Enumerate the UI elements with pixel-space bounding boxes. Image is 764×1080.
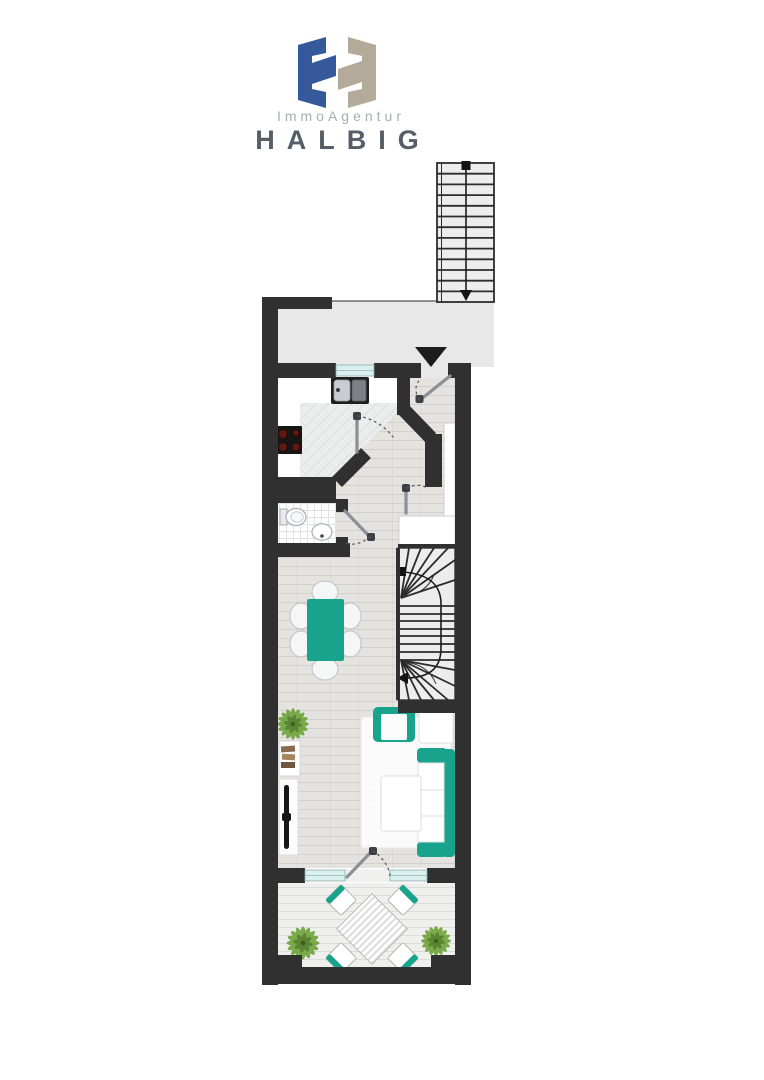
sofa [417, 748, 455, 857]
logo-mark-left-crossbar [312, 55, 336, 84]
closet-under-stair [399, 516, 455, 546]
books [281, 746, 295, 753]
sofa-cushions [418, 763, 444, 842]
wall-living-bottom-right [427, 868, 471, 883]
dining-table [307, 599, 344, 661]
washbasin-drain [320, 534, 324, 538]
books [281, 762, 295, 768]
logo-agency-line: ImmoAgentur [277, 108, 405, 124]
wall-stair-bottom [398, 700, 471, 713]
sink-faucet-icon [336, 388, 340, 392]
agency-logo: ImmoAgentur HALBIG [255, 37, 431, 155]
hall-niche [444, 423, 455, 521]
landing-floor [264, 301, 494, 367]
wall-top-a [262, 363, 336, 378]
stair-start-marker [462, 161, 471, 170]
sofa-back [443, 749, 455, 857]
wall-hall-stub [425, 434, 442, 487]
logo-mark-right-crossbar [338, 61, 362, 90]
internal-staircase [397, 548, 455, 700]
tv-unit [279, 779, 298, 855]
wall-stair-left [396, 548, 400, 700]
logo-agency-name: HALBIG [255, 125, 431, 155]
floorplan-page: ImmoAgentur HALBIG [0, 0, 764, 1080]
sofa-armrest-top [417, 748, 447, 763]
terrace-corner-left [262, 955, 302, 984]
coffee-table [381, 776, 421, 831]
armchair-seat [381, 714, 407, 740]
wall-living-bottom-left [262, 868, 305, 883]
sink-basin-right [352, 380, 366, 401]
wall-stair-top [398, 544, 455, 548]
terrace-corner-right [431, 955, 471, 984]
books [282, 754, 295, 761]
exterior-staircase [437, 161, 494, 302]
sofa-armrest-bottom [417, 842, 447, 857]
wall-kitchen-bath [262, 477, 336, 503]
wall-exterior-right [455, 363, 471, 985]
wall-bath-bottom [262, 543, 350, 557]
toilet-bowl-inner [291, 512, 303, 522]
wall-top-stub [262, 297, 332, 309]
sideboard [279, 741, 300, 776]
floor-plan-canvas: ImmoAgentur HALBIG [0, 0, 764, 1080]
tv-stand [282, 813, 291, 821]
wall-top-b [374, 363, 421, 378]
entrance-threshold [421, 363, 448, 379]
